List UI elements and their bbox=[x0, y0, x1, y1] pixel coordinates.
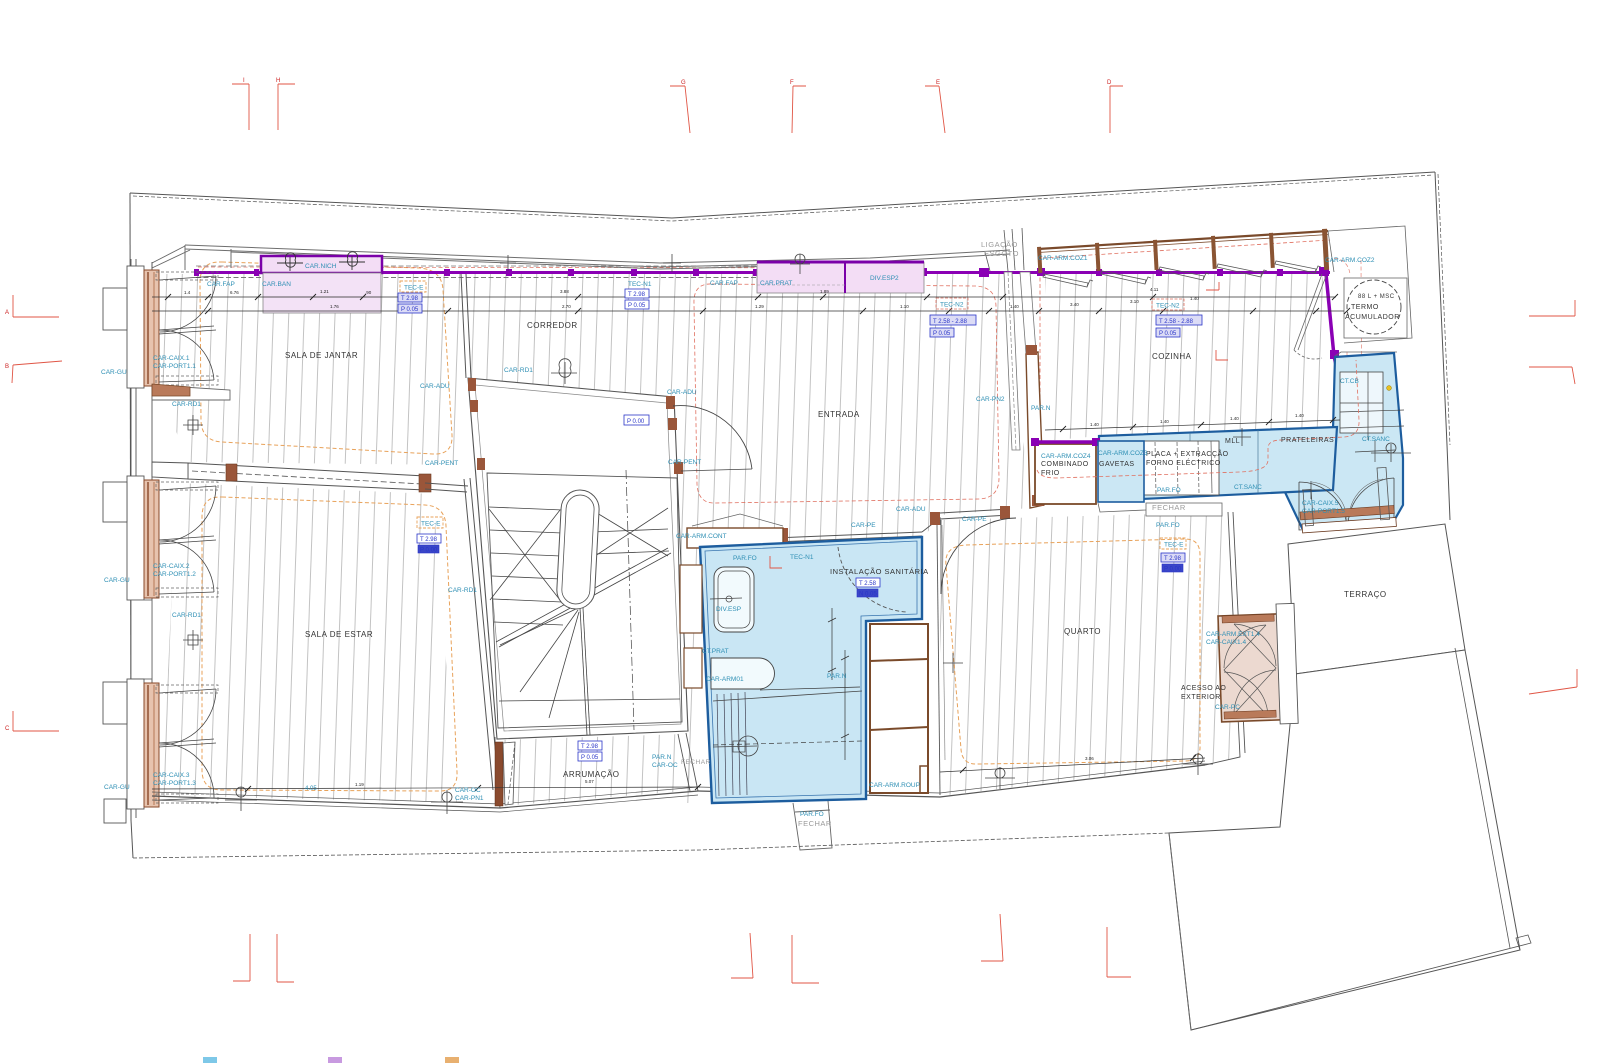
svg-text:FRIO: FRIO bbox=[1041, 470, 1060, 477]
svg-text:CAR-ARM.ROUP: CAR-ARM.ROUP bbox=[869, 782, 920, 789]
svg-text:1.40: 1.40 bbox=[1230, 416, 1239, 421]
svg-text:CAR-ARM.COZ4: CAR-ARM.COZ4 bbox=[1041, 453, 1091, 460]
svg-text:1.21: 1.21 bbox=[320, 289, 329, 294]
svg-text:ENTRADA: ENTRADA bbox=[818, 410, 860, 419]
svg-text:GAVETAS: GAVETAS bbox=[1099, 461, 1135, 468]
svg-text:CAR-ARM.CONT: CAR-ARM.CONT bbox=[676, 533, 727, 540]
svg-text:CAR-CAIX1.4: CAR-CAIX1.4 bbox=[1206, 639, 1246, 646]
svg-text:SALA DE ESTAR: SALA DE ESTAR bbox=[305, 630, 373, 639]
svg-text:T 2.58 - 2.88: T 2.58 - 2.88 bbox=[1159, 319, 1194, 325]
svg-text:5.07: 5.07 bbox=[585, 779, 594, 784]
svg-text:.90: .90 bbox=[365, 290, 372, 295]
svg-text:P 0.00: P 0.00 bbox=[1164, 567, 1182, 573]
svg-text:CAR-GU: CAR-GU bbox=[101, 369, 127, 376]
svg-text:CAR-GU: CAR-GU bbox=[104, 577, 130, 584]
svg-text:LIGAÇÃO: LIGAÇÃO bbox=[981, 240, 1018, 249]
svg-text:P 0.00: P 0.00 bbox=[420, 548, 438, 554]
svg-text:PAR.FO: PAR.FO bbox=[800, 811, 824, 818]
svg-text:G: G bbox=[681, 80, 686, 86]
svg-text:T 2.98: T 2.98 bbox=[581, 744, 599, 750]
svg-text:CAR-PE: CAR-PE bbox=[962, 516, 987, 523]
svg-text:CAR-ADU: CAR-ADU bbox=[420, 383, 450, 390]
svg-text:4.11: 4.11 bbox=[1150, 287, 1159, 292]
svg-text:C: C bbox=[5, 726, 10, 732]
svg-text:1.4: 1.4 bbox=[184, 290, 191, 295]
svg-text:PAR.N: PAR.N bbox=[652, 754, 672, 761]
svg-text:PAR.FO: PAR.FO bbox=[1156, 522, 1180, 529]
svg-text:A: A bbox=[5, 310, 9, 316]
svg-text:CAR-ADU: CAR-ADU bbox=[667, 389, 697, 396]
svg-text:ACESSO AO: ACESSO AO bbox=[1181, 685, 1226, 692]
svg-text:CT.CB: CT.CB bbox=[1340, 378, 1359, 385]
svg-text:T 2.98: T 2.98 bbox=[1164, 556, 1182, 562]
svg-text:SALA DE JANTAR: SALA DE JANTAR bbox=[285, 351, 358, 360]
svg-text:MLL: MLL bbox=[1225, 438, 1240, 445]
svg-text:3.06: 3.06 bbox=[1085, 756, 1094, 761]
svg-text:1.29: 1.29 bbox=[755, 304, 764, 309]
svg-text:CAR-PORT1.5: CAR-PORT1.5 bbox=[1302, 508, 1345, 515]
svg-text:1.40: 1.40 bbox=[1160, 419, 1169, 424]
svg-text:CAR-ARM.COZ3: CAR-ARM.COZ3 bbox=[1098, 450, 1148, 457]
svg-text:INSTALAÇÃO SANITÁRIA: INSTALAÇÃO SANITÁRIA bbox=[830, 567, 929, 576]
svg-text:ACUMULADOR: ACUMULADOR bbox=[1345, 314, 1400, 321]
svg-text:F: F bbox=[790, 80, 794, 86]
svg-text:CAR-PENT: CAR-PENT bbox=[668, 459, 701, 466]
svg-text:CAR.PRAT: CAR.PRAT bbox=[760, 280, 792, 287]
svg-text:4.05: 4.05 bbox=[305, 786, 317, 792]
svg-text:FORNO ELÉCTRICO: FORNO ELÉCTRICO bbox=[1146, 458, 1221, 467]
svg-text:PAR.N: PAR.N bbox=[1031, 405, 1051, 412]
svg-text:CT.SANC: CT.SANC bbox=[1362, 436, 1390, 443]
svg-text:TEC-N1: TEC-N1 bbox=[790, 554, 814, 561]
svg-text:N 0.05: N 0.05 bbox=[859, 592, 877, 598]
svg-text:DIV.ESP2: DIV.ESP2 bbox=[870, 275, 899, 282]
svg-text:P 0.05: P 0.05 bbox=[581, 755, 599, 761]
svg-text:88 L + MSC: 88 L + MSC bbox=[1358, 294, 1395, 300]
svg-text:PLACA + EXTRACÇÃO: PLACA + EXTRACÇÃO bbox=[1146, 449, 1229, 458]
svg-text:E: E bbox=[936, 80, 940, 86]
svg-text:T 2.98: T 2.98 bbox=[628, 292, 646, 298]
svg-text:COZINHA: COZINHA bbox=[1152, 352, 1192, 361]
svg-text:TEC-N1: TEC-N1 bbox=[628, 281, 652, 288]
svg-text:TEC-N2: TEC-N2 bbox=[1156, 303, 1180, 310]
svg-text:1.89: 1.89 bbox=[820, 289, 829, 294]
svg-text:1.19: 1.19 bbox=[355, 782, 364, 787]
svg-text:1.76: 1.76 bbox=[330, 304, 339, 309]
svg-text:CAR-ARM01: CAR-ARM01 bbox=[706, 676, 744, 683]
svg-text:ESGOTO: ESGOTO bbox=[984, 249, 1019, 258]
svg-text:ARRUMAÇÃO: ARRUMAÇÃO bbox=[563, 770, 620, 779]
svg-text:COMBINADO: COMBINADO bbox=[1041, 461, 1089, 468]
svg-text:T 2.98: T 2.98 bbox=[420, 537, 438, 543]
svg-text:CT.PRAT: CT.PRAT bbox=[702, 648, 729, 655]
svg-text:2.70: 2.70 bbox=[562, 304, 571, 309]
svg-text:FECHAR: FECHAR bbox=[798, 819, 832, 828]
svg-text:CAR-PENT: CAR-PENT bbox=[425, 460, 458, 467]
svg-text:H: H bbox=[276, 78, 280, 84]
svg-text:PRATELEIRAS: PRATELEIRAS bbox=[1281, 437, 1334, 444]
svg-text:TERRAÇO: TERRAÇO bbox=[1344, 590, 1387, 599]
svg-text:CAR.BAN: CAR.BAN bbox=[262, 281, 291, 288]
svg-text:1.40: 1.40 bbox=[1190, 296, 1199, 301]
svg-text:PAR.FO: PAR.FO bbox=[1157, 487, 1181, 494]
svg-text:CAR-OC: CAR-OC bbox=[455, 787, 481, 794]
svg-text:3.40: 3.40 bbox=[1070, 302, 1079, 307]
svg-text:CAR-RD1: CAR-RD1 bbox=[448, 587, 477, 594]
svg-text:TEC-N2: TEC-N2 bbox=[940, 302, 964, 309]
svg-text:TEC-E: TEC-E bbox=[421, 521, 441, 528]
svg-text:3.10: 3.10 bbox=[1130, 299, 1139, 304]
svg-text:B: B bbox=[5, 364, 9, 370]
svg-text:TEC-E: TEC-E bbox=[1164, 542, 1184, 549]
svg-text:CAR.FAP: CAR.FAP bbox=[207, 281, 235, 288]
svg-text:CORREDOR: CORREDOR bbox=[527, 321, 578, 330]
svg-text:QUARTO: QUARTO bbox=[1064, 627, 1101, 636]
svg-text:CAR-CAIX.3: CAR-CAIX.3 bbox=[153, 772, 190, 779]
svg-text:CAR-ADU: CAR-ADU bbox=[896, 506, 926, 513]
svg-text:6.76: 6.76 bbox=[230, 290, 239, 295]
svg-text:P 0.05: P 0.05 bbox=[628, 303, 646, 309]
svg-text:FECHAR: FECHAR bbox=[681, 759, 711, 766]
svg-text:TEC-E: TEC-E bbox=[404, 285, 424, 292]
svg-text:DIV.ESP: DIV.ESP bbox=[716, 606, 741, 613]
svg-text:TERMO: TERMO bbox=[1351, 304, 1379, 311]
svg-text:P 0.05: P 0.05 bbox=[933, 331, 951, 337]
svg-text:P 0.00: P 0.00 bbox=[627, 419, 645, 425]
svg-text:PAR.N: PAR.N bbox=[827, 673, 847, 680]
svg-text:CAR-PORT1.2: CAR-PORT1.2 bbox=[153, 571, 196, 578]
svg-text:1.40: 1.40 bbox=[1295, 413, 1304, 418]
svg-text:CAR-PORT1.1: CAR-PORT1.1 bbox=[153, 363, 196, 370]
svg-text:CAR-CAIX.2: CAR-CAIX.2 bbox=[153, 563, 190, 570]
svg-text:CAR-RD1: CAR-RD1 bbox=[172, 401, 201, 408]
svg-text:PAR.FO: PAR.FO bbox=[733, 555, 757, 562]
svg-text:CAR-RD1: CAR-RD1 bbox=[504, 367, 533, 374]
svg-text:T 2.58 - 2.88: T 2.58 - 2.88 bbox=[933, 319, 968, 325]
svg-text:CAR-RD1: CAR-RD1 bbox=[172, 612, 201, 619]
svg-text:P 0.05: P 0.05 bbox=[1159, 331, 1177, 337]
svg-text:CAR.FAP: CAR.FAP bbox=[710, 280, 738, 287]
svg-text:CAR-ARM.EXT1.4: CAR-ARM.EXT1.4 bbox=[1206, 631, 1260, 638]
svg-text:CAR-PC: CAR-PC bbox=[1215, 704, 1240, 711]
svg-text:1.40: 1.40 bbox=[1010, 304, 1019, 309]
svg-text:P 0.05: P 0.05 bbox=[401, 307, 419, 313]
svg-text:CT.SANC: CT.SANC bbox=[1234, 484, 1262, 491]
svg-text:1.10: 1.10 bbox=[900, 304, 909, 309]
svg-text:T 2.98: T 2.98 bbox=[401, 296, 419, 302]
svg-text:CAR-PN2: CAR-PN2 bbox=[976, 396, 1005, 403]
svg-text:EXTERIOR: EXTERIOR bbox=[1181, 694, 1221, 701]
svg-text:1.40: 1.40 bbox=[1090, 422, 1099, 427]
svg-text:CAR-ARM.COZ1: CAR-ARM.COZ1 bbox=[1038, 255, 1088, 262]
svg-text:FECHAR: FECHAR bbox=[1152, 503, 1186, 512]
svg-text:CAR-OC: CAR-OC bbox=[652, 762, 678, 769]
svg-text:CAR-PE: CAR-PE bbox=[851, 522, 876, 529]
svg-text:CAR-ARM.COZ2: CAR-ARM.COZ2 bbox=[1325, 257, 1375, 264]
svg-text:CAR-PORT1.3: CAR-PORT1.3 bbox=[153, 780, 196, 787]
svg-text:CAR-PN1: CAR-PN1 bbox=[455, 795, 484, 802]
svg-text:D: D bbox=[1107, 80, 1112, 86]
svg-text:CAR-CAIX.5: CAR-CAIX.5 bbox=[1302, 500, 1339, 507]
svg-text:CAR-GU: CAR-GU bbox=[104, 784, 130, 791]
svg-text:CAR.NICH: CAR.NICH bbox=[305, 263, 337, 270]
svg-text:CAR-CAIX.1: CAR-CAIX.1 bbox=[153, 355, 190, 362]
svg-text:3.88: 3.88 bbox=[560, 289, 569, 294]
svg-text:T 2.58: T 2.58 bbox=[859, 581, 877, 587]
